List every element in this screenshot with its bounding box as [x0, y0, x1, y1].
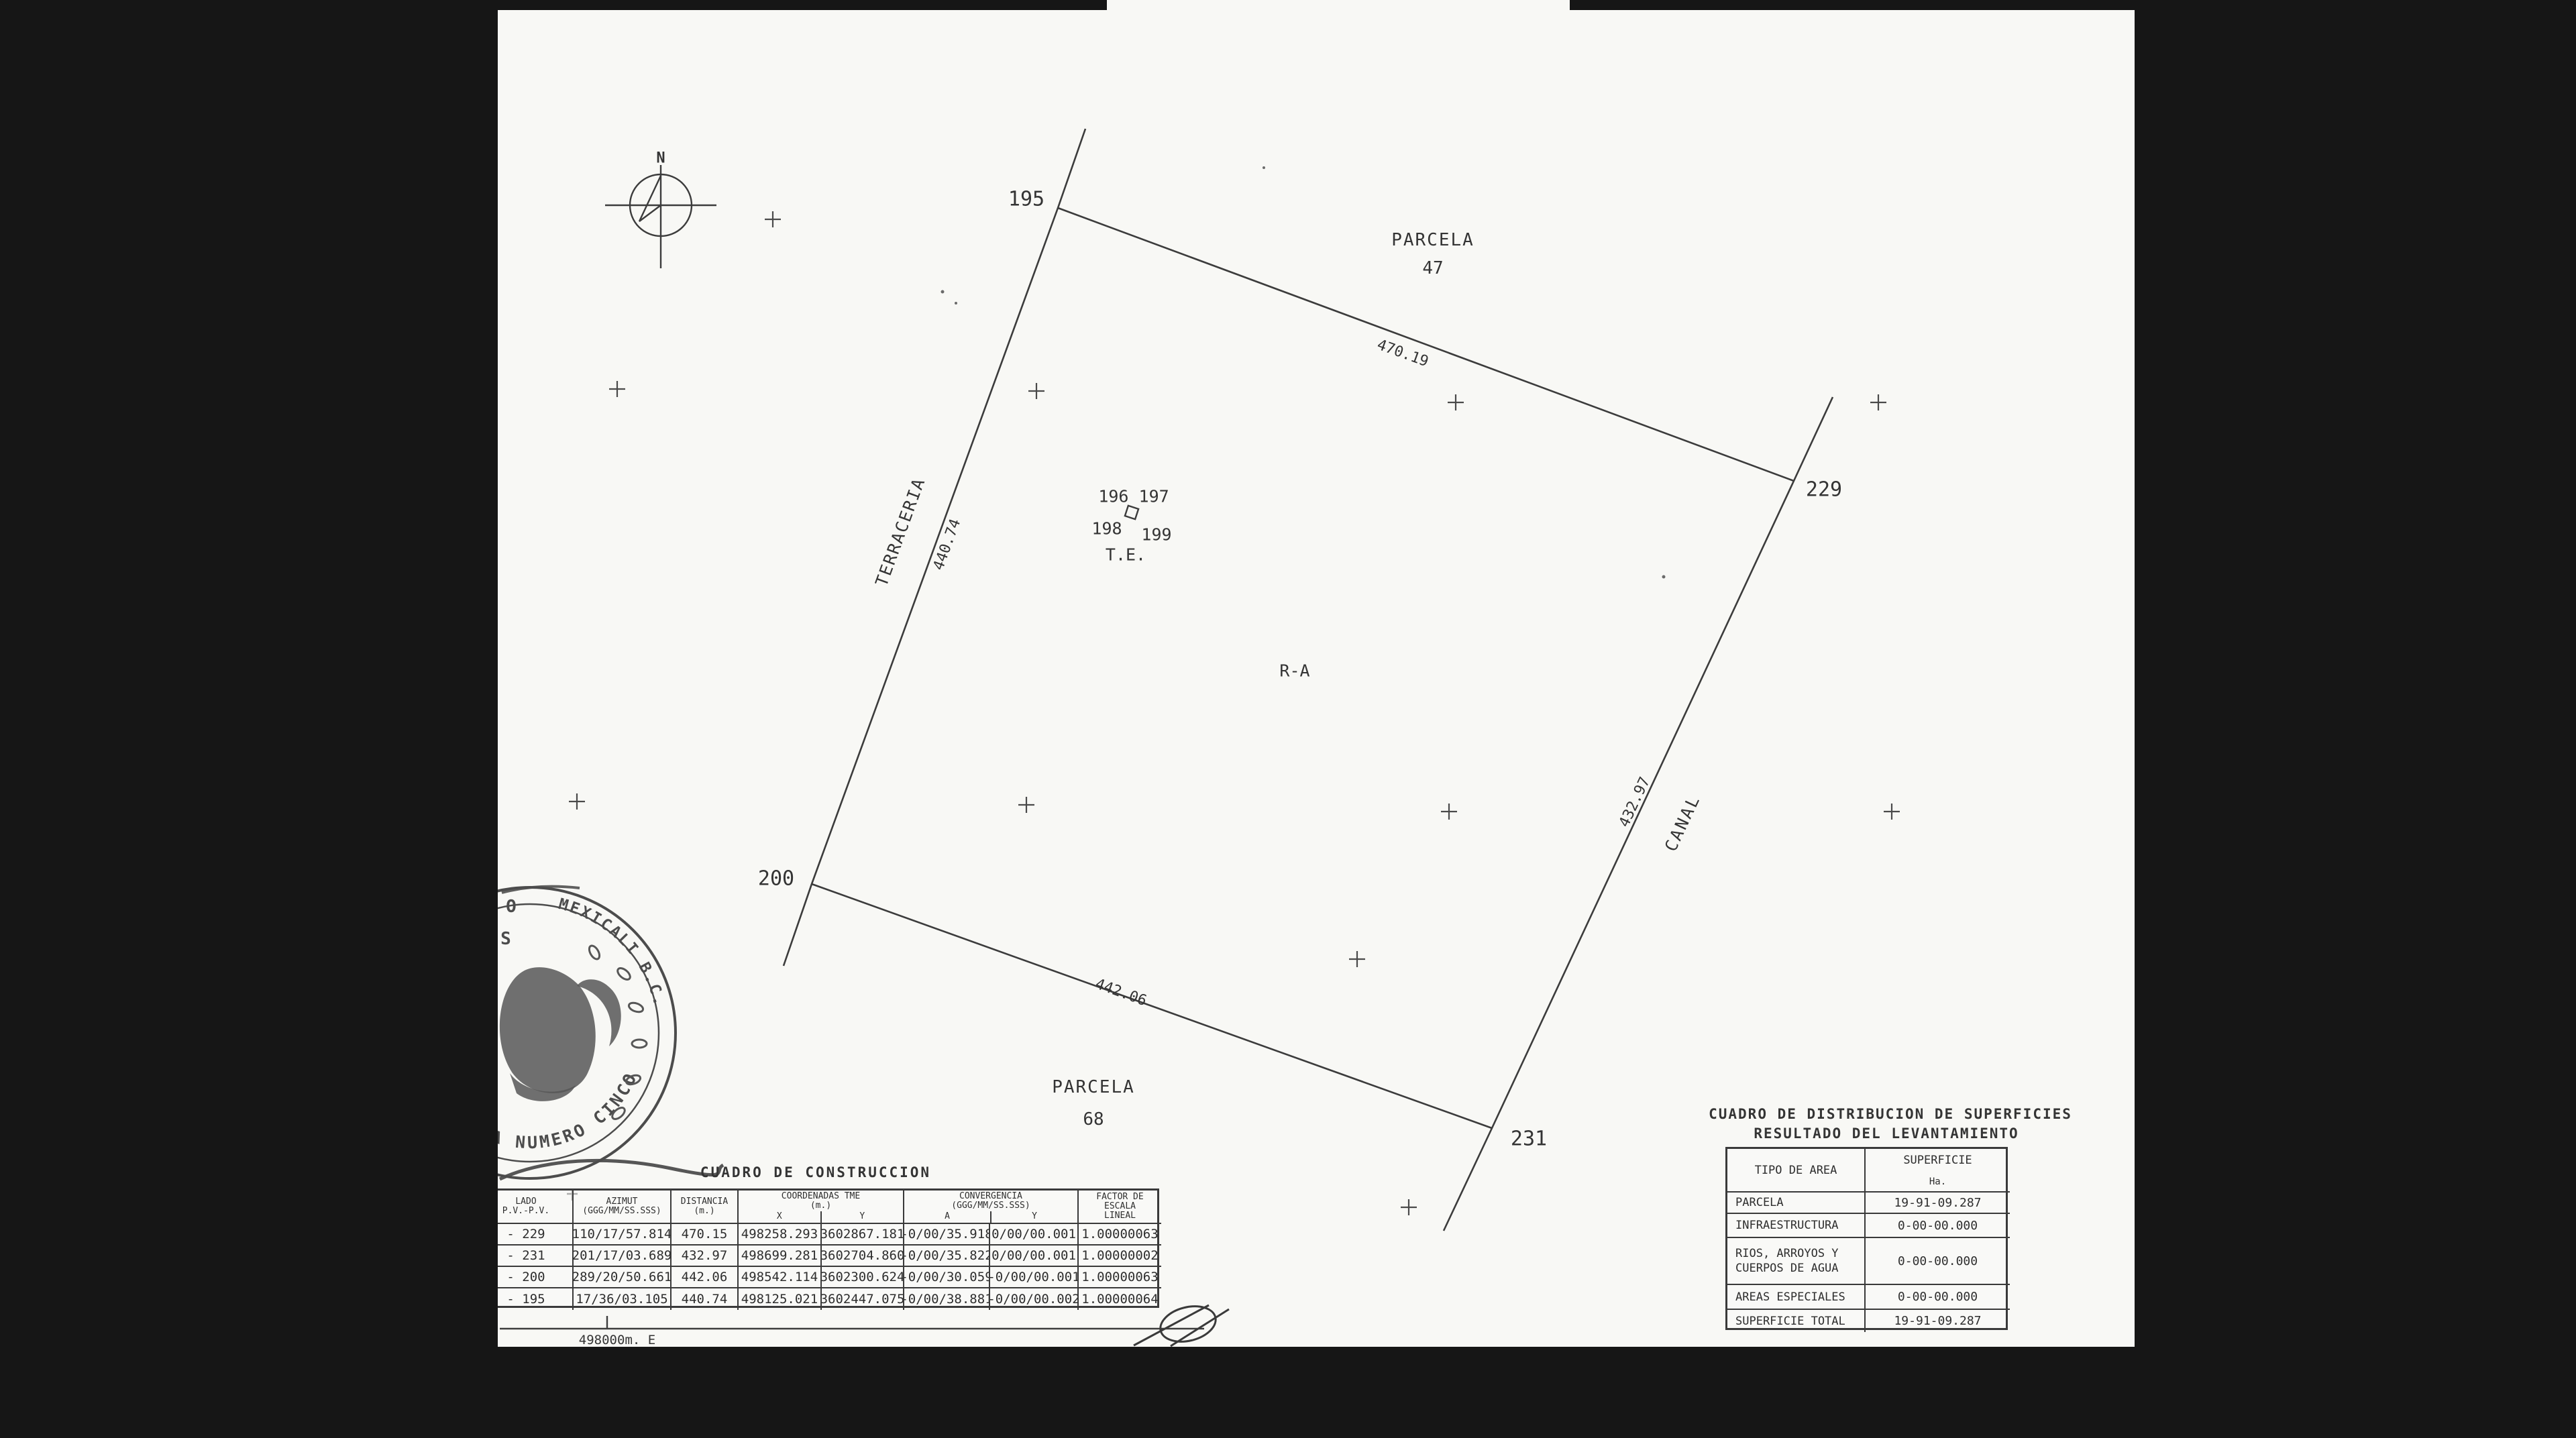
table-cell: 498125.021	[739, 1288, 822, 1310]
table-cell: 3602300.624	[822, 1267, 904, 1288]
table-cell: 17/36/03.105	[574, 1288, 672, 1310]
header-lado: LADO	[515, 1197, 536, 1207]
seal-fragment-o: O	[506, 897, 517, 917]
construction-table-title: CUADRO DE CONSTRUCCION	[700, 1164, 931, 1180]
col-header-coordenadas: COORDENADAS TME (m.) X Y	[739, 1191, 904, 1224]
grid-easting-label: 498000m. E	[579, 1333, 655, 1347]
point-198: 198	[1091, 519, 1122, 539]
col-header-azimut: AZIMUT (GGG/MM/SS.SSS)	[574, 1191, 672, 1224]
header-coordenadas-unit: (m.)	[810, 1201, 831, 1211]
construction-table: LADO P.V.-P.V. AZIMUT (GGG/MM/SS.SSS) DI…	[478, 1188, 1159, 1308]
parcel-47-number: 47	[1422, 258, 1443, 278]
header-coordenadas: COORDENADAS TME	[782, 1192, 860, 1201]
table-cell: 470.15	[672, 1224, 739, 1246]
header-azimut-unit: (GGG/MM/SS.SSS)	[582, 1207, 661, 1216]
table-cell: SUPERFICIE TOTAL	[1727, 1310, 1866, 1332]
grid-crosses	[569, 211, 1900, 1215]
distribution-table-title-1: CUADRO DE DISTRIBUCION DE SUPERFICIES	[1709, 1106, 2072, 1122]
parcel-bottom-edge	[812, 884, 1492, 1128]
scan-specks	[941, 166, 1666, 579]
grid-cross	[1349, 951, 1365, 967]
vertex-label-195: 195	[1008, 188, 1044, 211]
table-cell: 0/00/00.001	[990, 1246, 1079, 1267]
header-distancia: DISTANCIA	[681, 1197, 728, 1207]
table-cell: 432.97	[672, 1246, 739, 1267]
te-marker-square	[1125, 506, 1138, 519]
header-factor-1: FACTOR DE	[1096, 1193, 1143, 1202]
table-cell: PARCELA	[1727, 1193, 1866, 1214]
table-cell-line2: CUERPOS DE AGUA	[1735, 1262, 1839, 1275]
header-pv: P.V.-P.V.	[502, 1207, 549, 1216]
grid-cross	[569, 793, 585, 810]
table-cell: 1.00000002	[1079, 1246, 1161, 1267]
table-cell: -0/00/38.881	[904, 1288, 990, 1310]
table-cell: 0-00-00.000	[1866, 1214, 2010, 1238]
grid-cross	[1884, 804, 1900, 820]
table-cell: 1.00000063	[1079, 1224, 1161, 1246]
vertex-label-231: 231	[1511, 1127, 1547, 1151]
points-196-197: 196 197	[1098, 487, 1169, 506]
grid-cross	[1448, 394, 1464, 410]
table-cell: 442.06	[672, 1267, 739, 1288]
col-header-distancia: DISTANCIA (m.)	[672, 1191, 739, 1224]
header-y: Y	[820, 1211, 904, 1223]
north-label: N	[656, 150, 665, 167]
col-header-convergencia: CONVERGENCIA (GGG/MM/SS.SSS) A Y	[904, 1191, 1079, 1224]
table-cell: -0/00/30.059	[904, 1267, 990, 1288]
parcel-68-word: PARCELA	[1052, 1077, 1135, 1097]
grid-cross	[1870, 394, 1886, 410]
header-factor-2: ESCALA	[1104, 1202, 1136, 1211]
table-cell: 3602867.181	[822, 1224, 904, 1246]
eagle-emblem	[500, 967, 621, 1101]
table-cell: 0-00-00.000	[1866, 1238, 2010, 1285]
grid-cross	[1441, 804, 1457, 820]
left-letterbox-bar	[0, 0, 498, 1438]
grid-cross	[609, 381, 625, 397]
table-cell-line1: RIOS, ARROYOS Y	[1735, 1247, 1839, 1260]
ra-label: R-A	[1279, 661, 1309, 681]
col-header-tipo-de-area: TIPO DE AREA	[1727, 1149, 1866, 1193]
header-convergencia-unit: (GGG/MM/SS.SSS)	[951, 1201, 1030, 1211]
table-cell: 289/20/50.661	[574, 1267, 672, 1288]
header-superficie: SUPERFICIE	[1903, 1154, 1972, 1167]
header-azimut: AZIMUT	[606, 1197, 638, 1207]
table-cell: 498699.281	[739, 1246, 822, 1267]
signature-stroke	[500, 1160, 723, 1179]
header-factor-3: LINEAL	[1104, 1211, 1136, 1221]
table-cell: AREAS ESPECIALES	[1727, 1285, 1866, 1310]
table-cell: -0/00/00.002	[990, 1288, 1079, 1310]
table-cell: 19-91-09.287	[1866, 1310, 2010, 1332]
table-cell: 19-91-09.287	[1866, 1193, 2010, 1214]
grid-cross	[1018, 797, 1034, 813]
col-header-factor: FACTOR DE ESCALA LINEAL	[1079, 1191, 1161, 1224]
header-x: X	[739, 1211, 820, 1223]
bottom-letterbox-bar	[0, 1347, 2576, 1438]
table-cell: -0/00/35.918	[904, 1224, 990, 1246]
north-arrow	[605, 165, 716, 268]
table-cell: 3602704.860	[822, 1246, 904, 1267]
table-cell: INFRAESTRUCTURA	[1727, 1214, 1866, 1238]
table-cell: 1.00000064	[1079, 1288, 1161, 1310]
col-header-superficie: SUPERFICIE Ha.	[1866, 1149, 2010, 1193]
point-199: 199	[1141, 525, 1171, 545]
table-cell: 0/00/00.001	[990, 1224, 1079, 1246]
scanned-parcel-plan: NOTARIA NUMERO CINCO MEXICALI B.C. N 1	[0, 0, 2576, 1438]
north-arrow-needle	[639, 176, 661, 221]
parcel-68-number: 68	[1083, 1109, 1104, 1129]
table-cell: -0/00/35.822	[904, 1246, 990, 1267]
grid-cross	[765, 211, 781, 227]
right-letterbox-bar	[2135, 0, 2576, 1438]
vertex-label-200: 200	[758, 867, 794, 891]
top-left-scan-edge	[0, 0, 1107, 10]
table-cell: 1.00000063	[1079, 1267, 1161, 1288]
table-cell: -0/00/00.001	[990, 1267, 1079, 1288]
table-cell: 0-00-00.000	[1866, 1285, 2010, 1310]
top-right-scan-edge	[1570, 0, 2576, 10]
table-cell: 3602447.075	[822, 1288, 904, 1310]
terraceria-line	[784, 129, 1085, 966]
distribution-table-title-2: RESULTADO DEL LEVANTAMIENTO	[1754, 1125, 2019, 1142]
parcel-47-word: PARCELA	[1391, 230, 1474, 250]
table-cell: 440.74	[672, 1288, 739, 1310]
table-cell: 498542.114	[739, 1267, 822, 1288]
grid-cross	[1028, 383, 1044, 399]
table-cell: 498258.293	[739, 1224, 822, 1246]
header-ha: Ha.	[1929, 1176, 1946, 1187]
table-cell: 201/17/03.689	[574, 1246, 672, 1267]
distribution-table: TIPO DE AREA SUPERFICIE Ha. PARCELA 19-9…	[1725, 1147, 2008, 1330]
te-label: T.E.	[1106, 545, 1146, 565]
vertex-label-229: 229	[1806, 478, 1842, 502]
header-convergencia: CONVERGENCIA	[959, 1192, 1022, 1201]
header-conv-a: A	[904, 1211, 990, 1223]
seal-fragment-s: S	[500, 929, 511, 949]
header-conv-y: Y	[990, 1211, 1077, 1223]
table-cell: RIOS, ARROYOS Y CUERPOS DE AGUA	[1727, 1238, 1866, 1285]
header-distancia-unit: (m.)	[694, 1207, 714, 1216]
grid-cross	[1401, 1199, 1417, 1215]
table-cell: 110/17/57.814	[574, 1224, 672, 1246]
